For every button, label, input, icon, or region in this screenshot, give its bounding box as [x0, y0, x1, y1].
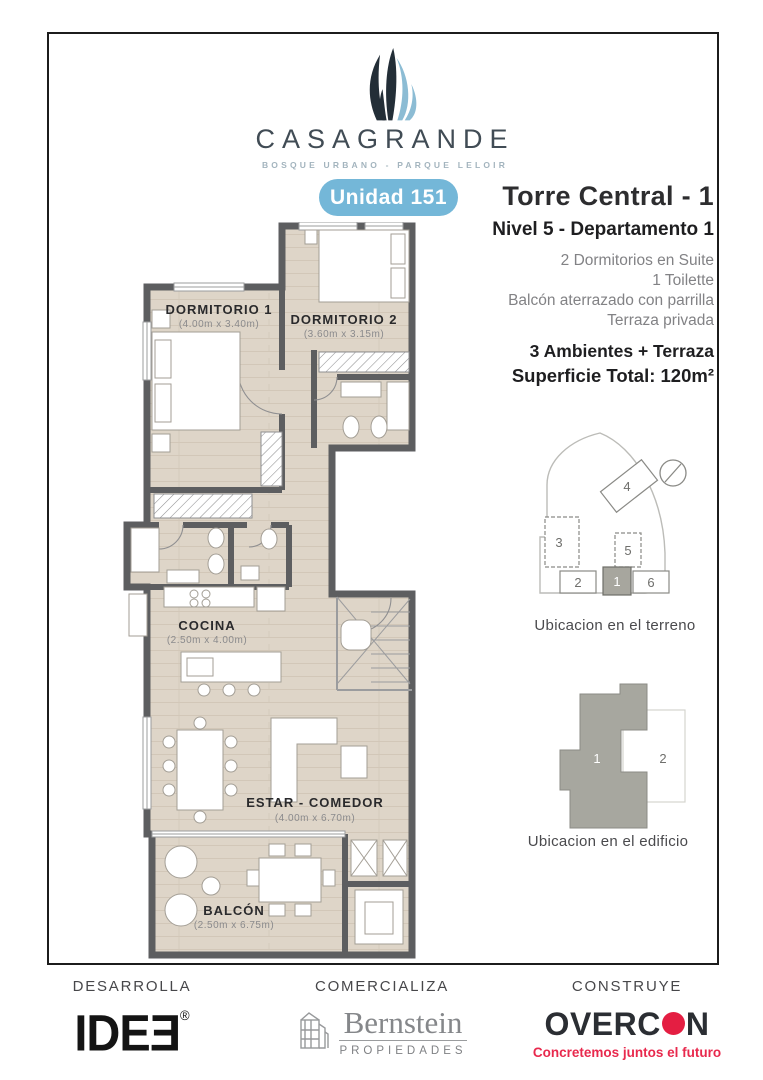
- site-building-4: 4: [623, 479, 630, 494]
- overcon-logo: OVERCN: [512, 1008, 742, 1040]
- room-dims-balcon: (2.50m x 6.75m): [194, 920, 274, 931]
- feature-item: Balcón aterrazado con parrilla: [394, 291, 714, 311]
- room-label-dorm1: DORMITORIO 1: [165, 302, 272, 317]
- bernstein-sub: PROPIEDADES: [339, 1045, 466, 1057]
- registered-mark: ®: [180, 1007, 190, 1023]
- feature-list: 2 Dormitorios en Suite 1 Toilette Balcón…: [394, 251, 714, 332]
- building-plan: 1 2: [535, 678, 705, 833]
- brand-tagline: BOSQUE URBANO - PARQUE LELOIR: [250, 160, 520, 170]
- role-label: DESARROLLA: [17, 978, 247, 995]
- bernstein-logo: Bernstein: [339, 1007, 466, 1041]
- feature-item: 2 Dormitorios en Suite: [394, 251, 714, 271]
- room-label-estar: ESTAR - COMEDOR: [246, 795, 384, 810]
- site-building-1: 1: [613, 574, 620, 589]
- floor-plan: DORMITORIO 1 (4.00m x 3.40m) DORMITORIO …: [119, 222, 419, 962]
- site-building-6: 6: [647, 575, 654, 590]
- building-unit-1: 1: [593, 751, 600, 766]
- room-label-dorm2: DORMITORIO 2: [290, 312, 397, 327]
- footer-desarrolla: DESARROLLA IDEƎ®: [17, 978, 247, 1056]
- role-label: CONSTRUYE: [512, 978, 742, 995]
- footer-construye: CONSTRUYE OVERCN Concretemos juntos el f…: [512, 978, 742, 1060]
- site-building-3: 3: [555, 535, 562, 550]
- overcon-red-dot: [662, 1012, 685, 1035]
- site-building-5: 5: [624, 543, 631, 558]
- brand-name: CASAGRANDE: [250, 124, 520, 155]
- room-dims-dorm1: (4.00m x 3.40m): [179, 319, 259, 330]
- feature-item: 1 Toilette: [394, 271, 714, 291]
- brand-header: CASAGRANDE BOSQUE URBANO - PARQUE LELOIR: [250, 48, 520, 170]
- room-dims-cocina: (2.50m x 4.00m): [167, 635, 247, 646]
- unit-info: Torre Central - 1 Nivel 5 - Departamento…: [394, 181, 714, 387]
- site-building-2: 2: [574, 575, 581, 590]
- role-label: COMERCIALIZA: [267, 978, 497, 995]
- superficie-line: Superficie Total: 120m²: [394, 365, 714, 387]
- level-subtitle: Nivel 5 - Departamento 1: [394, 219, 714, 241]
- ambientes-line: 3 Ambientes + Terraza: [394, 341, 714, 362]
- room-label-balcon: BALCÓN: [203, 903, 265, 918]
- site-plan: 3 4 5 2 1 6: [515, 425, 715, 610]
- building-unit-2: 2: [659, 751, 666, 766]
- tower-title: Torre Central - 1: [394, 181, 714, 212]
- room-dims-estar: (4.00m x 6.70m): [275, 813, 355, 824]
- feature-item: Terraza privada: [394, 311, 714, 331]
- overcon-tagline: Concretemos juntos el futuro: [512, 1045, 742, 1060]
- site-plan-caption: Ubicacion en el terreno: [515, 617, 715, 634]
- casagrande-leaf-icon: [348, 48, 422, 122]
- idee-logo: IDEƎ®: [17, 1007, 247, 1058]
- room-label-cocina: COCINA: [178, 618, 235, 633]
- room-dims-dorm2: (3.60m x 3.15m): [304, 329, 384, 340]
- building-plan-caption: Ubicacion en el edificio: [508, 833, 708, 850]
- footer-comercializa: COMERCIALIZA Bernstein PROPIEDADES: [267, 978, 497, 1057]
- bernstein-building-icon: [297, 1010, 331, 1054]
